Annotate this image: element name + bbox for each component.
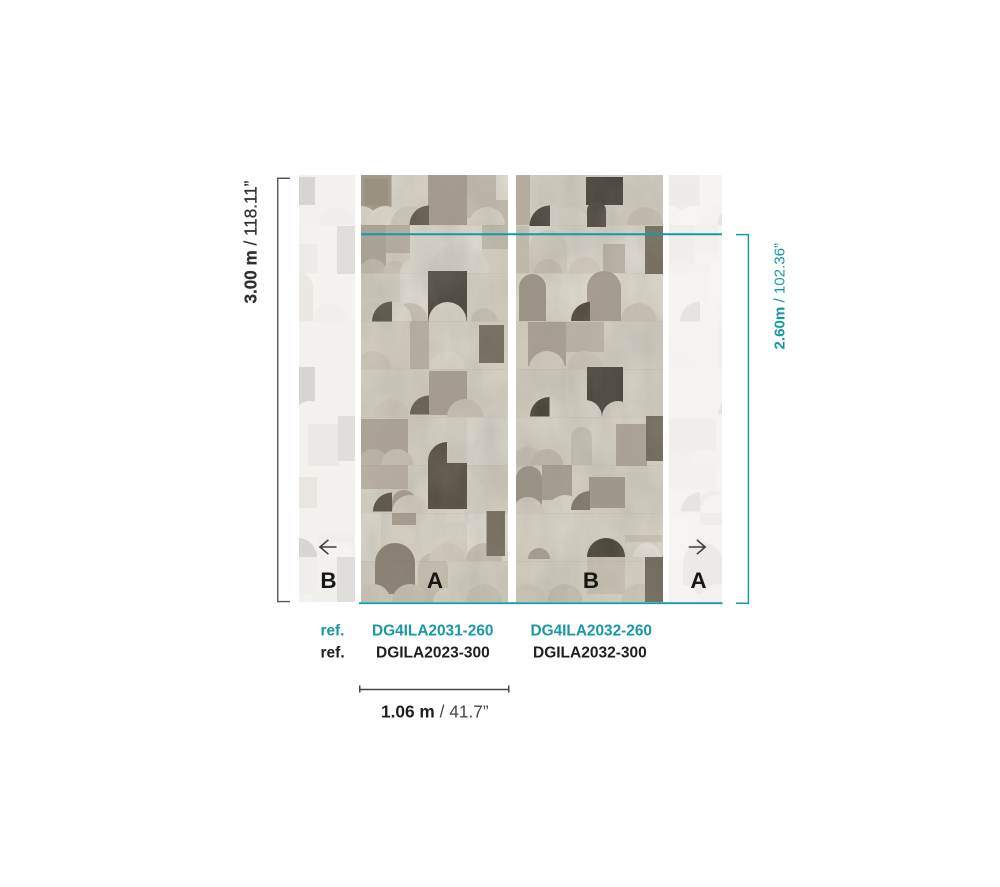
svg-text:ref.: ref. (321, 645, 345, 662)
svg-text:DG4ILA2031-260: DG4ILA2031-260 (372, 623, 493, 640)
svg-text:B: B (583, 568, 599, 593)
svg-text:1.06 m / 41.7”: 1.06 m / 41.7” (381, 702, 489, 722)
svg-text:3.00 m / 118.11”: 3.00 m / 118.11” (242, 180, 261, 303)
svg-text:ref.: ref. (321, 623, 345, 640)
svg-text:DG4ILA2032-260: DG4ILA2032-260 (531, 623, 652, 640)
svg-text:DGILA2023-300: DGILA2023-300 (376, 645, 490, 662)
svg-text:A: A (690, 568, 706, 593)
svg-text:DGILA2032-300: DGILA2032-300 (533, 645, 647, 662)
svg-text:B: B (320, 568, 336, 593)
svg-text:2.60m / 102.36”: 2.60m / 102.36” (772, 243, 789, 350)
svg-text:A: A (427, 568, 443, 593)
